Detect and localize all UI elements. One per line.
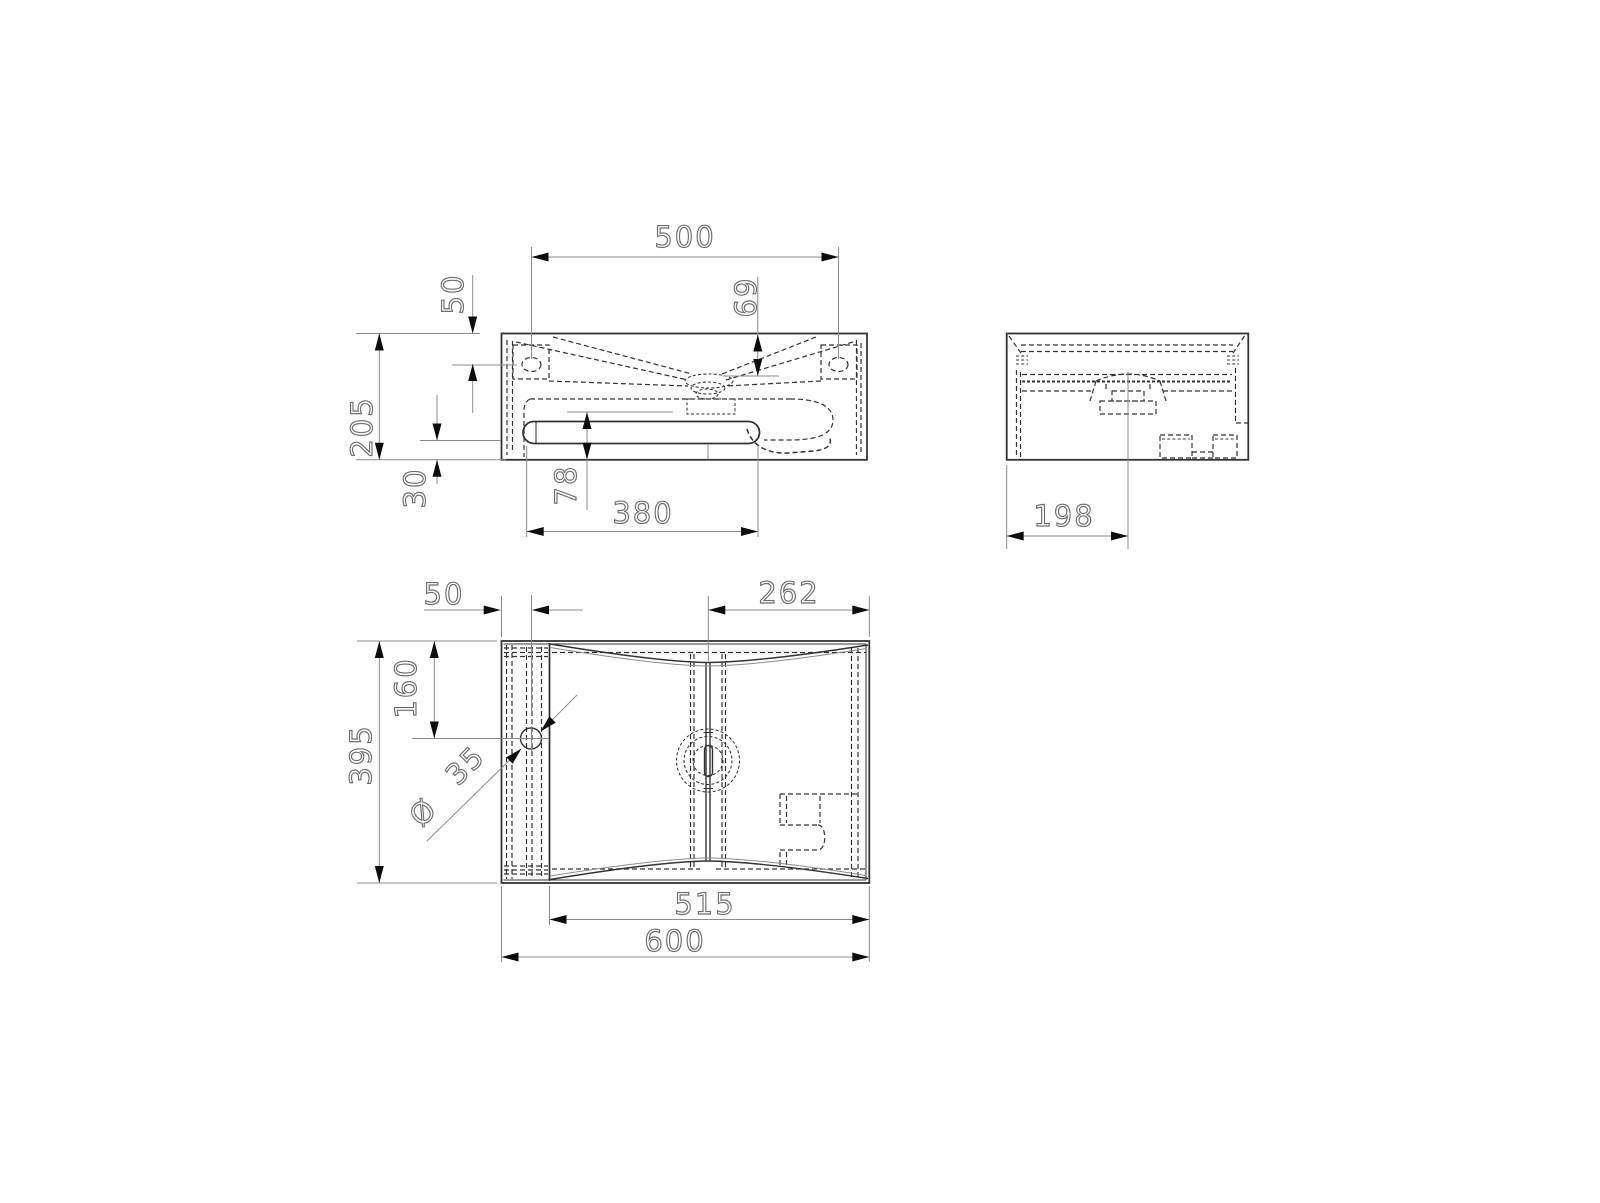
arrow xyxy=(484,606,501,615)
arrow xyxy=(375,334,384,351)
arrow xyxy=(852,953,869,962)
arrow xyxy=(527,527,544,536)
object-lines xyxy=(502,334,1249,884)
dim-label-top-to-drain: 69 xyxy=(729,277,763,318)
plan-wall-inner-edge xyxy=(504,644,867,880)
arrow xyxy=(375,866,384,883)
arrow xyxy=(433,460,442,477)
dim-label-slot-to-bottom: 78 xyxy=(549,465,583,506)
arrow xyxy=(375,641,384,658)
arrow xyxy=(502,953,519,962)
arrow xyxy=(741,527,758,536)
arrow xyxy=(1007,532,1024,541)
plan-bowl-bottom-edge xyxy=(550,861,868,880)
arrow xyxy=(822,253,839,262)
diameter-symbol: Ø xyxy=(402,791,444,833)
dim-label-top-to-hole: 50 xyxy=(436,274,470,315)
dimension-arrows xyxy=(375,253,1128,962)
dim-label-top-to-faucet: 160 xyxy=(389,657,423,718)
front-outline xyxy=(502,334,868,460)
plan-drain xyxy=(677,729,740,792)
arrow xyxy=(468,364,477,381)
dim-label-height: 205 xyxy=(345,396,379,457)
plan-bowl-top-edge xyxy=(550,644,868,663)
arrow xyxy=(532,253,549,262)
front-view xyxy=(502,334,868,460)
arrow xyxy=(708,606,725,615)
arrow xyxy=(583,412,592,429)
dimension-labels: 500 50 205 69 30 78 380 198 50 262 160 3… xyxy=(344,220,1095,958)
dim-label-edge-to-faucet: 50 xyxy=(424,577,465,611)
plan-center-channel xyxy=(706,663,710,862)
front-towel-slot xyxy=(523,422,760,444)
arrow xyxy=(583,443,592,460)
front-mounting-hole-right xyxy=(829,358,848,372)
front-mounting-hole-left xyxy=(522,358,541,372)
plan-hidden-lines xyxy=(504,645,866,879)
dim-label-slot-width: 380 xyxy=(612,496,673,530)
arrow xyxy=(852,915,869,924)
dimension-lines xyxy=(356,247,1128,962)
washbasin-drawing: 500 50 205 69 30 78 380 198 50 262 160 3… xyxy=(0,0,1600,1203)
front-hidden-lines xyxy=(507,337,861,457)
arrow xyxy=(550,915,567,924)
plan-view xyxy=(502,641,870,883)
technical-drawing-canvas: 500 50 205 69 30 78 380 198 50 262 160 3… xyxy=(0,0,1600,1203)
dim-label-front-to-drain: 198 xyxy=(1033,499,1094,533)
dim-label-width: 600 xyxy=(644,924,705,958)
dim-label-holes-span: 500 xyxy=(654,220,715,254)
arrow xyxy=(532,606,549,615)
arrow xyxy=(430,641,439,658)
arrow xyxy=(1111,532,1128,541)
dim-label-bowl-width: 515 xyxy=(674,887,735,921)
plan-bracket xyxy=(780,794,858,867)
arrow xyxy=(753,359,762,376)
plan-outline xyxy=(502,641,870,883)
arrow xyxy=(852,606,869,615)
arrow xyxy=(433,424,442,441)
arrow xyxy=(468,317,477,334)
dim-label-faucet-diameter: 35 xyxy=(439,739,492,792)
arrow xyxy=(430,722,439,739)
dim-label-depth: 395 xyxy=(344,724,378,785)
dim-label-drain-to-edge: 262 xyxy=(758,576,819,610)
dim-label-bottom-to-slot: 30 xyxy=(398,468,432,509)
side-bracket xyxy=(1160,435,1237,458)
arrow xyxy=(753,335,762,352)
